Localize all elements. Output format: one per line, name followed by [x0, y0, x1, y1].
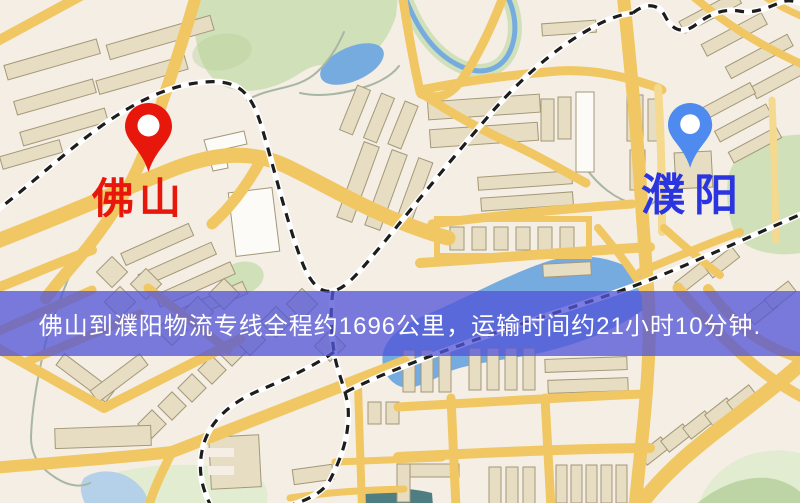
route-info-text: 佛山到濮阳物流专线全程约1696公里，运输时间约21小时10分钟. — [39, 306, 761, 341]
origin-pin red-map-pin-icon[interactable] — [125, 103, 172, 172]
route-info-banner: 佛山到濮阳物流专线全程约1696公里，运输时间约21小时10分钟. — [0, 291, 800, 356]
map-canvas[interactable] — [0, 0, 800, 503]
origin-city-label: 佛山 — [92, 178, 186, 220]
destination-city-label: 濮阳 — [641, 174, 747, 218]
map-viewport[interactable]: 佛山 濮阳 佛山到濮阳物流专线全程约1696公里，运输时间约21小时10分钟. — [0, 0, 800, 503]
